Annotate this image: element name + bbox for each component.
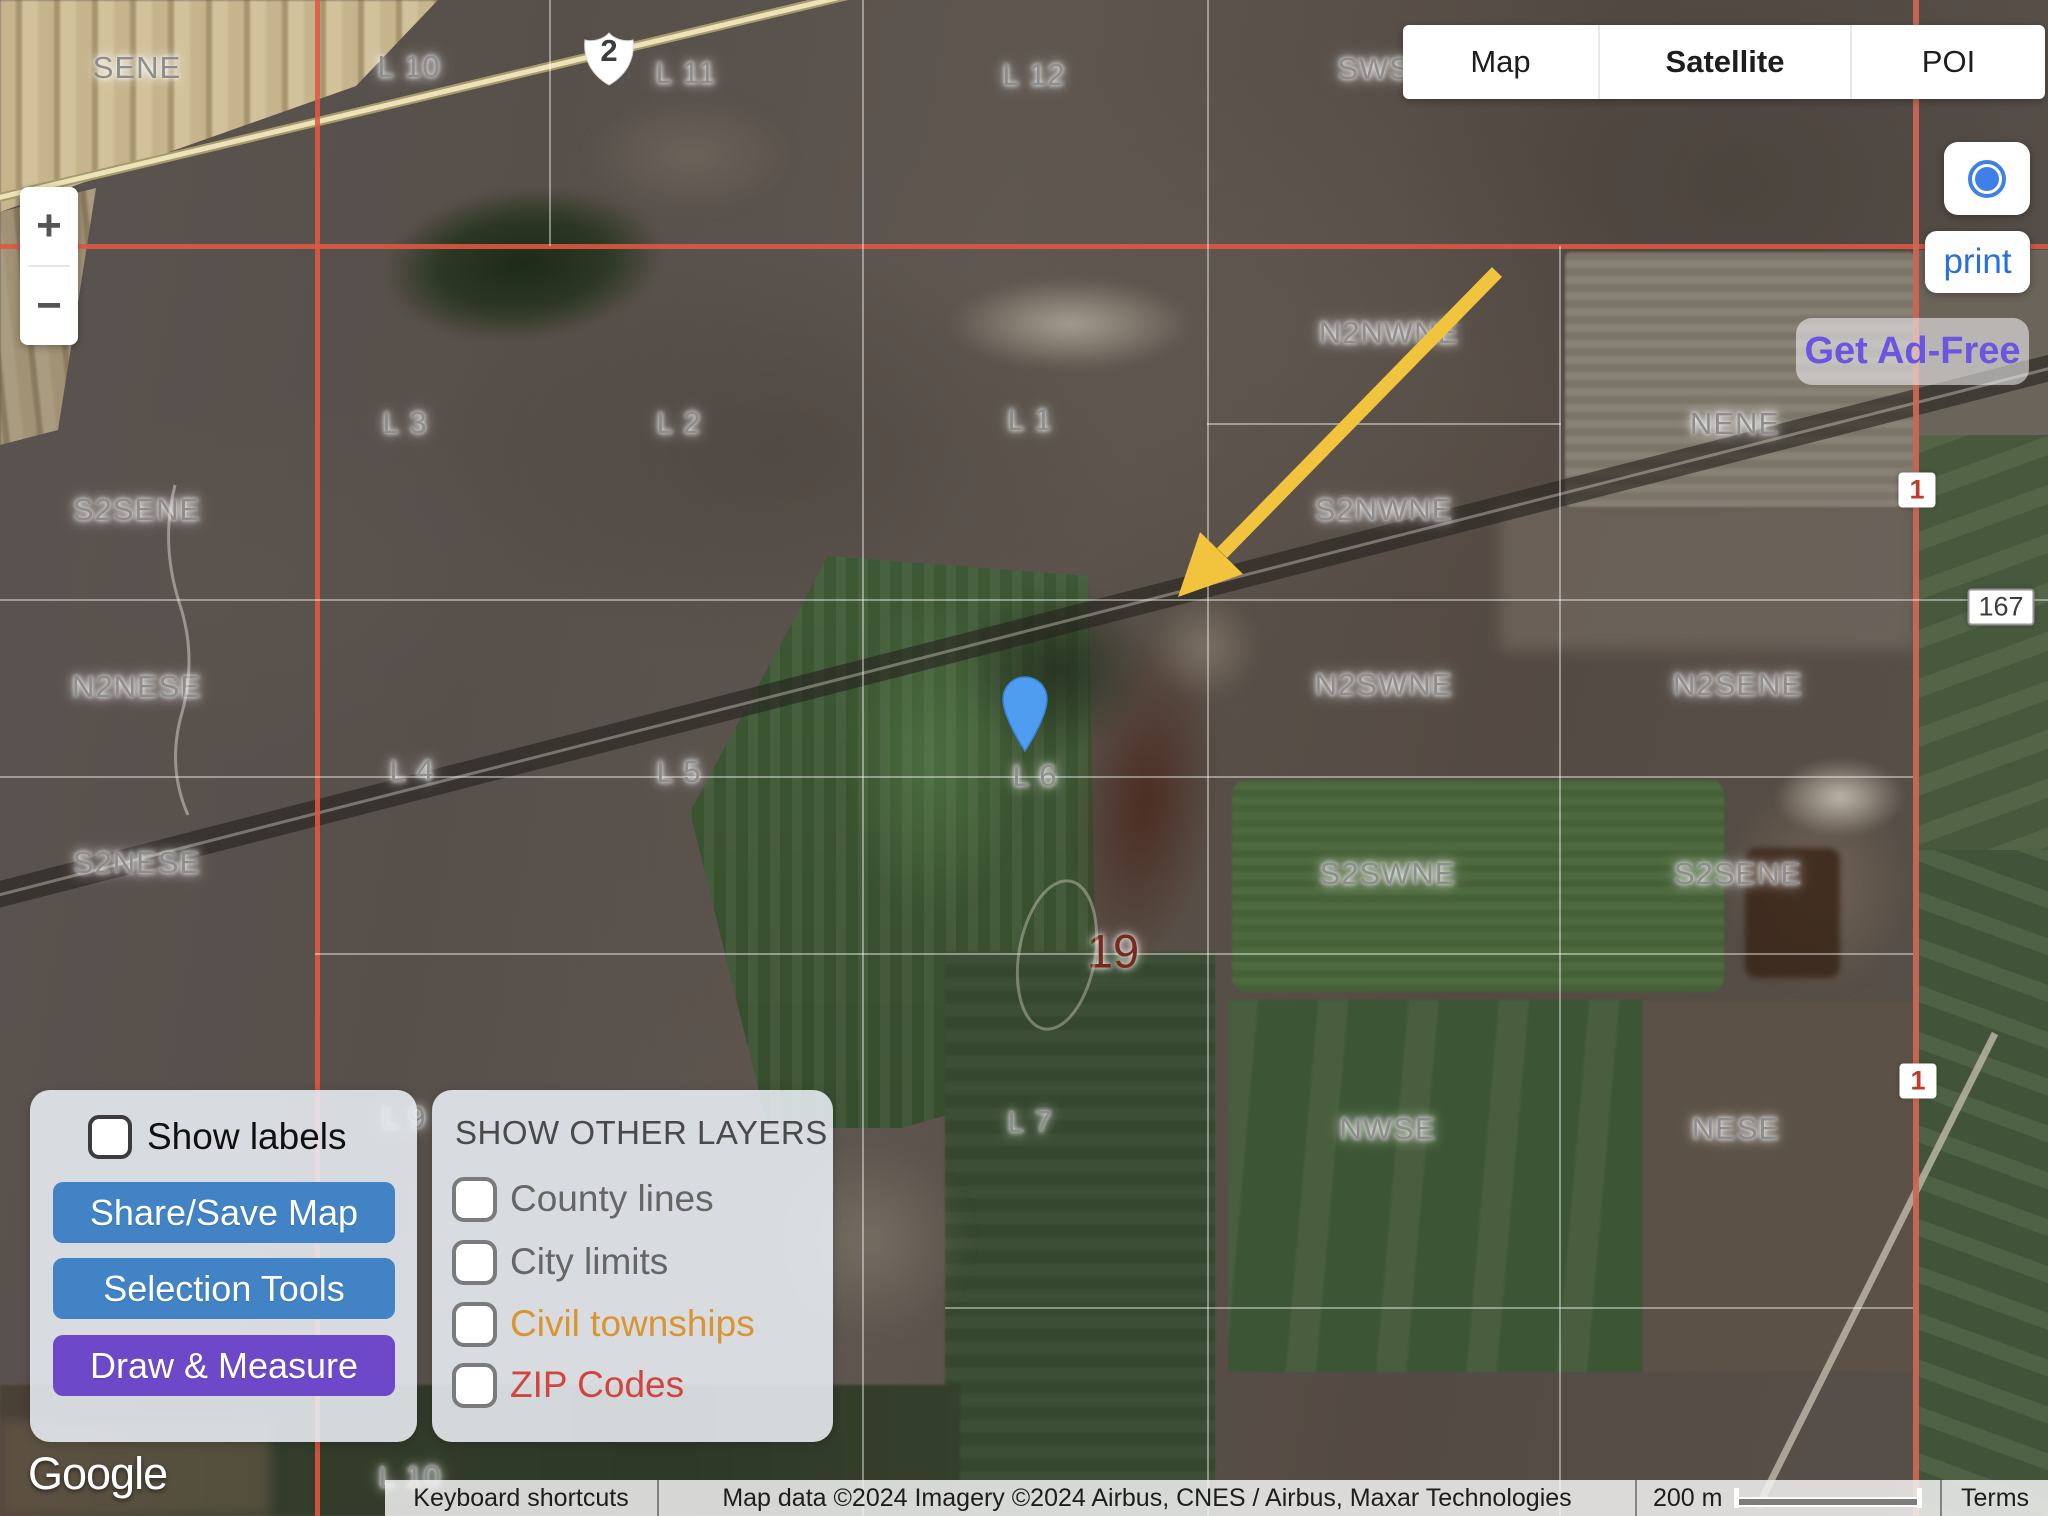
map-label: L 2 xyxy=(657,405,702,441)
scale-text: 200 m xyxy=(1653,1484,1722,1513)
terrain-s2swne-field xyxy=(1232,780,1724,992)
show-labels-label: Show labels xyxy=(147,1116,347,1158)
map-label: NENE xyxy=(1690,406,1780,442)
map-label: L 3 xyxy=(383,405,428,441)
us-route-2-shield-icon: 2 xyxy=(583,31,635,87)
civil-townships-label: Civil townships xyxy=(510,1303,755,1345)
map-label: N2SENE xyxy=(1673,667,1803,703)
map-viewport[interactable]: SENEL 10L 11L 12SWSEN2NWNENENEL 3L 2L 1S… xyxy=(0,0,2048,1516)
railroad-corridor xyxy=(0,354,2048,909)
map-label: NESE xyxy=(1692,1111,1780,1147)
city-limits-label: City limits xyxy=(510,1241,668,1283)
section-line-v3 xyxy=(1207,0,1209,1516)
my-location-icon xyxy=(1968,160,2006,198)
keyboard-shortcuts-button[interactable]: Keyboard shortcuts xyxy=(385,1480,657,1516)
terrain-gray-blob xyxy=(585,95,795,215)
terrain-nese-brown xyxy=(1643,1000,1916,1372)
terrain-white-patch xyxy=(948,278,1193,370)
map-label: S2NESE xyxy=(73,845,201,881)
section-line-h5 xyxy=(945,1307,1913,1309)
map-label: S2NWNE xyxy=(1315,492,1454,528)
map-label: N2NWNE xyxy=(1319,315,1459,351)
terrain-white-spots xyxy=(1775,758,1905,836)
map-label: S2SWNE xyxy=(1320,856,1457,892)
section-line-h4 xyxy=(315,953,1913,955)
map-label: L 5 xyxy=(657,754,702,790)
print-button[interactable]: print xyxy=(1925,231,2030,293)
terrain-trees xyxy=(962,583,1157,755)
trail-path xyxy=(169,485,189,815)
civil-townships-checkbox[interactable] xyxy=(452,1302,497,1347)
section-line-v2 xyxy=(862,0,864,1516)
map-label: N2SWNE xyxy=(1315,667,1454,703)
section-line-v1 xyxy=(549,0,551,246)
map-label: NWSE xyxy=(1340,1111,1437,1147)
share-save-map-button[interactable]: Share/Save Map xyxy=(53,1182,395,1243)
section-line-h2 xyxy=(0,599,2048,601)
section-line-h3 xyxy=(0,776,1913,778)
zip-codes-label: ZIP Codes xyxy=(510,1364,684,1406)
tools-panel: Show labels Share/Save Map Selection Too… xyxy=(30,1090,417,1442)
terrain-bright-subfield xyxy=(845,595,1020,925)
railroad-track-line xyxy=(0,365,2048,898)
get-ad-free-button[interactable]: Get Ad-Free xyxy=(1796,318,2029,385)
map-label: L 7 xyxy=(1008,1104,1053,1140)
map-label: L 4 xyxy=(390,753,435,789)
dirt-loop xyxy=(1007,875,1108,1036)
us-route-2-number: 2 xyxy=(583,33,635,69)
terrain-pond xyxy=(375,174,671,355)
map-marker-pin[interactable] xyxy=(1002,676,1048,757)
map-label: 19 xyxy=(1087,924,1139,979)
layers-panel-title: SHOW OTHER LAYERS xyxy=(455,1114,828,1152)
terrain-red-shrubs xyxy=(1049,628,1239,980)
zip-codes-checkbox[interactable] xyxy=(452,1363,497,1408)
county-lines-checkbox[interactable] xyxy=(452,1177,497,1222)
map-type-control: Map Satellite POI xyxy=(1403,25,2045,99)
scale-control: 200 m xyxy=(1635,1480,1940,1516)
terrain-nwse-field xyxy=(1228,1000,1643,1372)
city-limits-checkbox[interactable] xyxy=(452,1240,497,1285)
selection-tools-button[interactable]: Selection Tools xyxy=(53,1258,395,1319)
map-label: S2SENE xyxy=(1674,856,1802,892)
section-line-h1 xyxy=(1207,423,1561,425)
my-location-button[interactable] xyxy=(1944,142,2030,215)
terrain-tan-zone xyxy=(1724,772,1914,997)
zoom-out-button[interactable]: − xyxy=(20,267,78,345)
map-label: L 12 xyxy=(1002,57,1065,93)
show-labels-checkbox[interactable] xyxy=(88,1115,132,1159)
township-line-h xyxy=(0,244,2048,249)
terrain-east-green-bottom xyxy=(1916,850,2048,1516)
tab-satellite[interactable]: Satellite xyxy=(1598,25,1850,99)
route-marker: 167 xyxy=(1967,589,2034,626)
zoom-control: + − xyxy=(20,187,78,345)
township-line-v-east xyxy=(1913,0,1919,1516)
scale-bar xyxy=(1734,1488,1922,1508)
terms-link[interactable]: Terms xyxy=(1940,1480,2048,1516)
us2-road xyxy=(0,0,893,205)
map-label: SENE xyxy=(93,50,181,86)
map-data-attribution: Map data ©2024 Imagery ©2024 Airbus, CNE… xyxy=(657,1480,1635,1516)
terrain-corridor-south xyxy=(1500,500,1916,650)
zoom-in-button[interactable]: + xyxy=(20,187,78,265)
county-lines-label: County lines xyxy=(510,1178,714,1220)
tab-poi[interactable]: POI xyxy=(1850,25,2045,99)
map-label: N2NESE xyxy=(72,669,202,705)
terrain-east-green-top xyxy=(1916,435,2048,850)
tab-map[interactable]: Map xyxy=(1403,25,1598,99)
terrain-dark-brown-patch xyxy=(1745,848,1840,978)
terrain-sand-patch xyxy=(1150,592,1260,702)
terrain-mid-column-green xyxy=(945,952,1215,1516)
google-logo[interactable]: Google xyxy=(28,1448,167,1500)
map-label: S2SENE xyxy=(73,492,201,528)
map-label: L 10 xyxy=(377,49,440,85)
southeast-road xyxy=(1755,1032,1999,1509)
yellow-arrow-annotation xyxy=(1178,272,1497,597)
layers-panel: SHOW OTHER LAYERS County lines City limi… xyxy=(432,1090,833,1442)
map-label: L 1 xyxy=(1008,402,1053,438)
map-label: L 11 xyxy=(656,55,717,91)
section-line-v4 xyxy=(1559,246,1561,1516)
draw-measure-button[interactable]: Draw & Measure xyxy=(53,1335,395,1396)
